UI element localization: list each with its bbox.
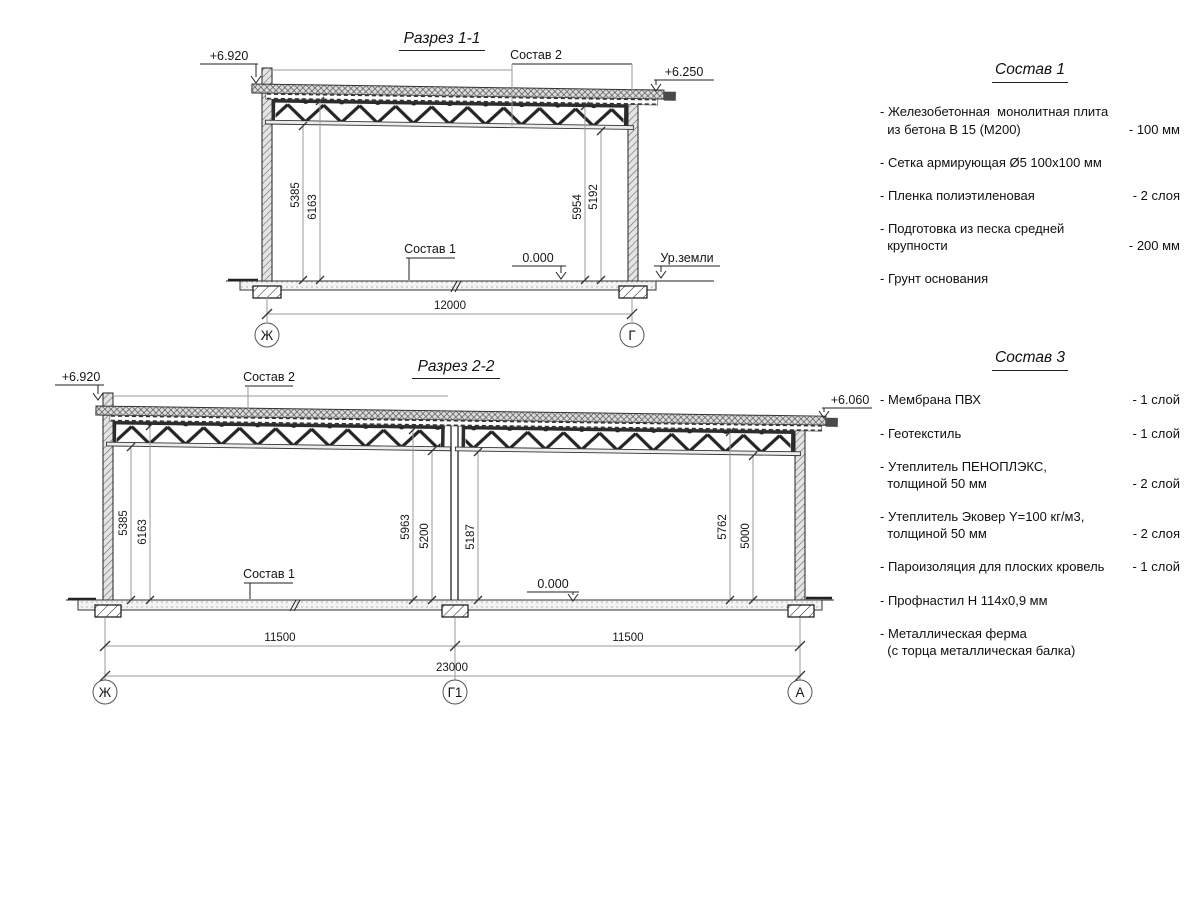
- s1-right-footing: [619, 286, 647, 298]
- s2-vdim-1: 6163: [137, 519, 149, 545]
- s2-roof-assembly: [95, 406, 837, 456]
- materials-panel-1: Состав 1 - Железобетонная монолитная пли…: [880, 60, 1180, 304]
- material-item: - Грунт основания: [880, 270, 1180, 287]
- section-2-2: +6.920 +6.060 Состав 2 Состав 1 0.0: [55, 370, 872, 704]
- drawing-sheet: +6.920 +6.250 Состав 2 Состав 1: [0, 0, 1200, 900]
- s1-span-value: 12000: [434, 300, 466, 312]
- s1-elev-right-value: +6.250: [665, 65, 704, 79]
- material-value: - 1 слой: [1124, 558, 1180, 575]
- s2-roof-edge-cap: [826, 418, 838, 427]
- s1-floor-slab: [240, 281, 656, 290]
- materials-panel-3: Состав 3 - Мембрана ПВХ - 1 слой - Геоте…: [880, 348, 1180, 675]
- material-name: - Железобетонная монолитная плита из бет…: [880, 103, 1108, 137]
- s1-vdim-3: 5192: [588, 184, 600, 210]
- s2-vdim-4: 5187: [465, 524, 477, 550]
- s2-floor-layer-callout: Состав 1: [243, 567, 295, 599]
- s1-zero-level-mark: 0.000: [512, 251, 566, 279]
- material-value: - 200 мм: [1121, 237, 1180, 254]
- s2-roof-layer-callout: Состав 2: [243, 370, 295, 409]
- s2-zero-level-mark: 0.000: [527, 577, 579, 601]
- material-item: - Геотекстиль - 1 слой: [880, 425, 1180, 442]
- material-item: - Утеплитель ПЕНОПЛЭКС, толщиной 50 мм -…: [880, 458, 1180, 492]
- s2-total-span-value: 23000: [436, 662, 468, 674]
- s2-axis-center: Г1: [448, 685, 463, 700]
- material-value: - 2 слоя: [1125, 525, 1180, 542]
- material-item: - Металлическая ферма (с торца металличе…: [880, 625, 1180, 659]
- s2-vdim-5: 5762: [717, 514, 729, 540]
- s1-roof-edge-cap: [664, 92, 676, 101]
- material-name: - Сетка армирующая Ø5 100x100 мм: [880, 154, 1102, 171]
- s1-axis-bubbles: Ж Г: [255, 323, 644, 347]
- section-1-1: +6.920 +6.250 Состав 2 Состав 1: [200, 48, 720, 347]
- s1-span-dimension: 12000: [262, 297, 637, 322]
- s2-truss-right: [455, 426, 800, 456]
- s2-floor-layer-label: Состав 1: [243, 567, 295, 581]
- material-name: - Пленка полиэтиленовая: [880, 187, 1035, 204]
- s2-vdim-2: 5963: [400, 514, 412, 540]
- material-value: - 100 мм: [1121, 121, 1180, 138]
- material-name: - Мембрана ПВХ: [880, 391, 981, 408]
- s2-vdim-0: 5385: [118, 510, 130, 536]
- s1-left-footing: [253, 286, 281, 298]
- material-item: - Утеплитель Эковер Y=100 кг/м3, толщино…: [880, 508, 1180, 542]
- material-item: - Мембрана ПВХ - 1 слой: [880, 391, 1180, 408]
- s1-vdim-1: 6163: [307, 194, 319, 220]
- s2-elev-right-value: +6.060: [831, 393, 870, 407]
- s2-left-footing: [95, 605, 121, 617]
- materials-panel-1-title: Состав 1: [992, 60, 1068, 83]
- material-name: - Грунт основания: [880, 270, 988, 287]
- section-2-2-title: Разрез 2-2: [412, 358, 500, 379]
- s1-roof-layer-label: Состав 2: [510, 48, 562, 62]
- s2-truss-left: [106, 421, 450, 451]
- s1-ground-level-mark: Ур.земли: [654, 251, 720, 278]
- material-name: - Пароизоляция для плоских кровель: [880, 558, 1104, 575]
- s1-axis-right: Г: [628, 328, 636, 343]
- s1-axis-left: Ж: [261, 328, 274, 343]
- s1-elevation-right: +6.250: [651, 65, 714, 91]
- s1-vdim-2: 5954: [572, 194, 584, 220]
- s2-axis-right: А: [795, 685, 804, 700]
- s2-span-right-value: 11500: [612, 632, 643, 644]
- s1-zero-level-value: 0.000: [522, 251, 553, 265]
- s2-right-footing: [788, 605, 814, 617]
- s1-roof-assembly: [251, 84, 676, 130]
- s1-elev-left-value: +6.920: [210, 49, 249, 63]
- material-name: - Профнастил Н 114х0,9 мм: [880, 592, 1048, 609]
- s2-floor: [66, 598, 834, 617]
- materials-panel-3-title: Состав 3: [992, 348, 1068, 371]
- section-1-1-title: Разрез 1-1: [399, 30, 485, 51]
- material-value: - 2 слой: [1124, 475, 1180, 492]
- s1-left-wall: [262, 68, 272, 288]
- s2-elev-left-value: +6.920: [62, 370, 101, 384]
- s1-ground-level-label: Ур.земли: [660, 251, 713, 265]
- s2-elevation-right: +6.060: [819, 393, 872, 418]
- material-item: - Железобетонная монолитная плита из бет…: [880, 103, 1180, 137]
- materials-panel-1-header: Состав 1: [880, 60, 1180, 83]
- s2-vdim-3: 5200: [419, 523, 431, 549]
- s1-floor-layer-callout: Состав 1: [404, 242, 456, 280]
- s2-zero-level-value: 0.000: [537, 577, 568, 591]
- down-arrow-icon: [251, 76, 261, 83]
- down-arrow-icon: [656, 271, 666, 278]
- s2-right-wall: [795, 418, 805, 608]
- s2-span-left-value: 11500: [264, 632, 295, 644]
- s2-axis-left: Ж: [99, 685, 112, 700]
- materials-panel-3-header: Состав 3: [880, 348, 1180, 371]
- material-item: - Пленка полиэтиленовая - 2 слоя: [880, 187, 1180, 204]
- s1-floor: [226, 280, 714, 298]
- material-item: - Подготовка из песка средней крупности …: [880, 220, 1180, 254]
- s1-right-wall: [628, 96, 638, 288]
- material-name: - Подготовка из песка средней крупности: [880, 220, 1064, 254]
- s2-vdim-6: 5000: [740, 523, 752, 549]
- s1-vdim-0: 5385: [290, 182, 302, 208]
- material-item: - Сетка армирующая Ø5 100x100 мм: [880, 154, 1180, 171]
- s2-span-dimensions: 11500 11500 23000: [100, 618, 805, 681]
- material-item: - Профнастил Н 114х0,9 мм: [880, 592, 1180, 609]
- s2-center-column: [451, 425, 458, 605]
- material-item: - Пароизоляция для плоских кровель - 1 с…: [880, 558, 1180, 575]
- material-value: - 1 слой: [1124, 425, 1180, 442]
- material-value: - 1 слой: [1124, 391, 1180, 408]
- material-name: - Утеплитель ПЕНОПЛЭКС, толщиной 50 мм: [880, 458, 1047, 492]
- material-name: - Утеплитель Эковер Y=100 кг/м3, толщино…: [880, 508, 1084, 542]
- s2-axis-bubbles: Ж Г1 А: [93, 680, 812, 704]
- down-arrow-icon: [93, 393, 103, 400]
- material-value: - 2 слоя: [1125, 187, 1180, 204]
- s2-left-wall: [103, 393, 113, 608]
- s2-center-footing: [442, 605, 468, 617]
- down-arrow-icon: [556, 272, 566, 279]
- s1-floor-layer-label: Состав 1: [404, 242, 456, 256]
- material-name: - Геотекстиль: [880, 425, 961, 442]
- s2-roof-layer-label: Состав 2: [243, 370, 295, 384]
- s1-elevation-left: +6.920: [200, 49, 261, 83]
- material-name: - Металлическая ферма (с торца металличе…: [880, 625, 1075, 659]
